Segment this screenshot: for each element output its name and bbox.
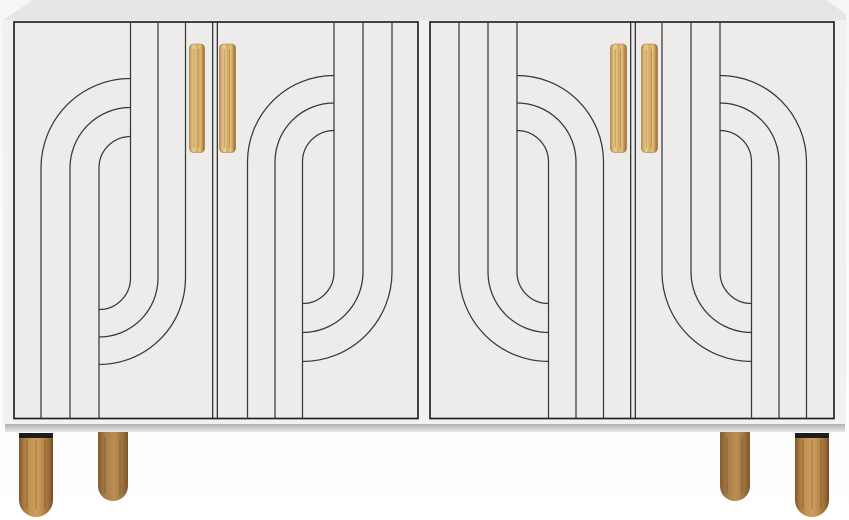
product-svg — [0, 0, 849, 520]
leg-front-right-cap — [795, 433, 829, 438]
cabinet-top-surface — [3, 0, 846, 21]
door-pair-left-frame — [14, 22, 418, 419]
cabinet-base-shadow — [5, 424, 845, 432]
handle-door-1 — [190, 44, 205, 153]
handle-door-4 — [642, 44, 658, 153]
door-pair-right-frame — [430, 22, 834, 419]
leg-back-left — [98, 432, 128, 501]
sideboard-product-image — [0, 0, 849, 520]
leg-back-right — [720, 432, 750, 501]
handle-door-2 — [220, 44, 236, 153]
handle-door-3 — [611, 44, 627, 153]
leg-front-left-cap — [19, 433, 53, 438]
